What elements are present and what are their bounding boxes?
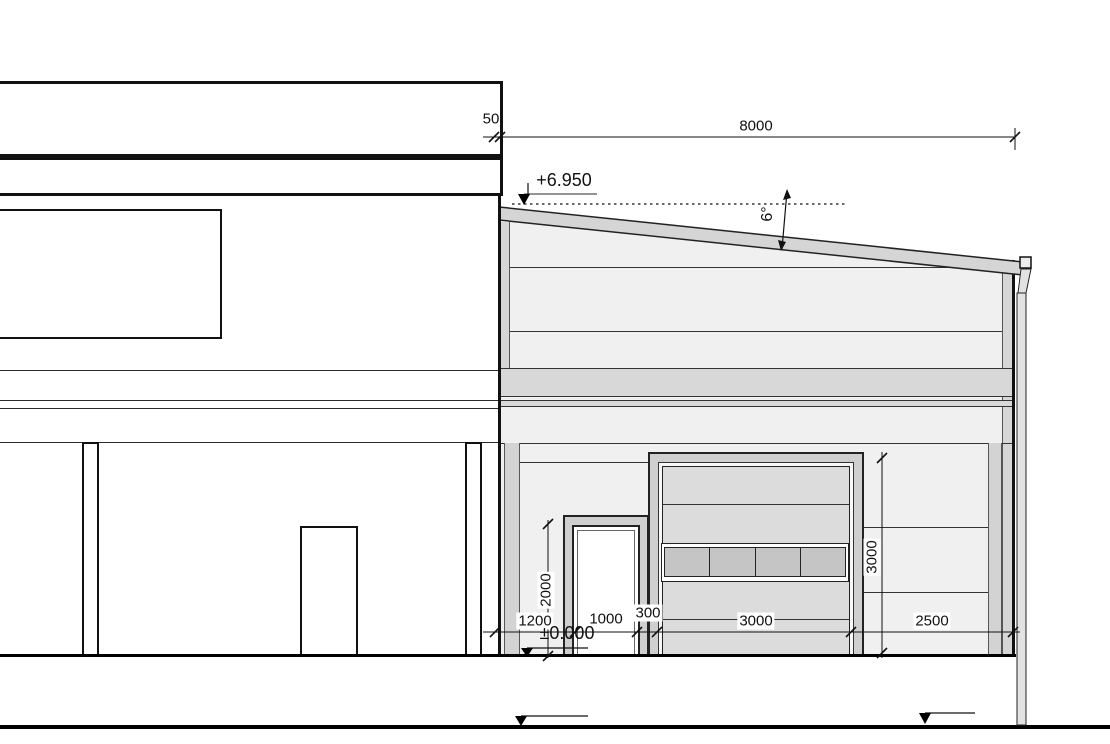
gutter-outlet <box>1020 257 1031 268</box>
floor-level-marker-triangle <box>521 648 533 657</box>
roof-angle-label: 6° <box>759 204 777 223</box>
downspout-pipe <box>1017 293 1026 725</box>
dim-label-garage-height: 3000 <box>864 538 881 575</box>
elevation-drawing: 50 8000 1200 1000 300 3000 2500 2000 300… <box>0 0 1110 744</box>
level-label-floor: ±0.000 <box>538 623 597 643</box>
terrain-marker-triangle <box>919 713 931 724</box>
terrain-marker-triangle <box>515 716 527 726</box>
dim-label-50: 50 <box>481 111 502 128</box>
dim-label-2500: 2500 <box>913 613 950 630</box>
dim-label-3000: 3000 <box>737 613 774 630</box>
dim-label-8000: 8000 <box>737 118 774 135</box>
dim-label-door-height: 2000 <box>538 571 555 608</box>
dim-label-300: 300 <box>633 605 662 622</box>
level-label-roof: +6.950 <box>534 170 594 190</box>
